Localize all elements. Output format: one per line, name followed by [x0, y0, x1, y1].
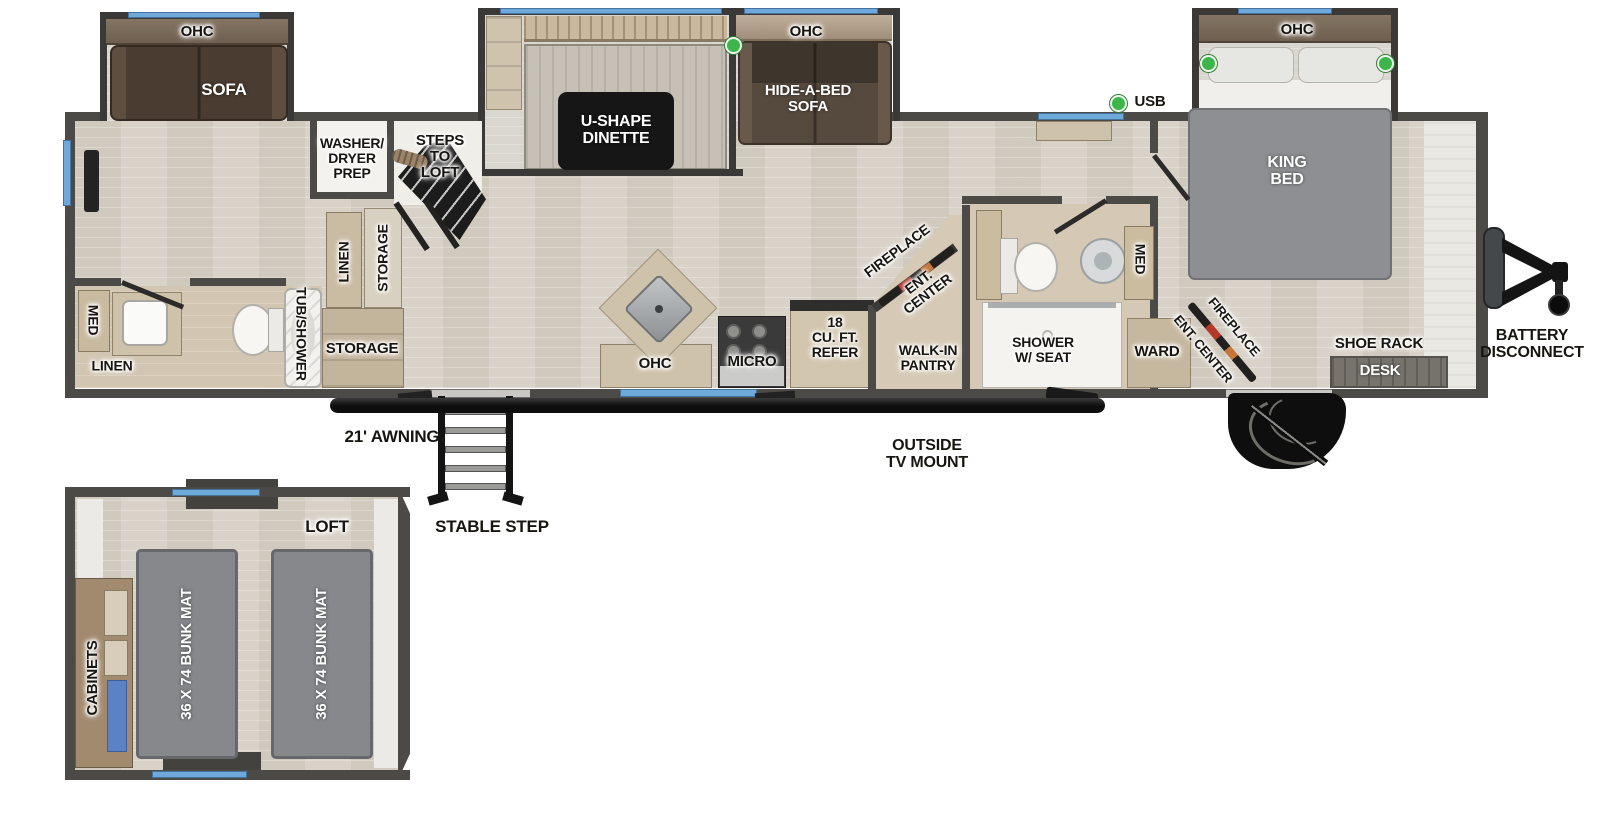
refrigerator-label: 18 CU. FT. REFER [812, 315, 858, 359]
wall [65, 487, 75, 780]
shower-w-seat-label: SHOWER W/ SEAT [1012, 335, 1074, 365]
loft-panel [77, 499, 103, 579]
wall [310, 192, 394, 199]
med-label: MED [1133, 244, 1148, 275]
bathroom-cabinet [976, 210, 1002, 300]
wall [478, 169, 743, 176]
trailer-hitch-icon [1482, 220, 1578, 324]
bunk-mat-label: 36 X 74 BUNK MAT [179, 588, 195, 720]
side-entry-door [430, 389, 530, 398]
usb-indicator [1200, 55, 1217, 72]
wall [1150, 121, 1158, 153]
linen-label: LINEN [91, 359, 132, 374]
u-shape-dinette-label: U-SHAPE DINETTE [581, 114, 652, 148]
dinette-window-valance [524, 16, 727, 42]
usb-indicator [1110, 95, 1127, 112]
burner-icon [726, 324, 741, 339]
window [128, 12, 260, 18]
rv-floorplan: OHC SOFA WASHER/ DRYER PREP STEPS TO LOF… [0, 0, 1600, 840]
pillow [1298, 47, 1384, 83]
tub-shower-label: TUB/SHOWER [294, 287, 309, 381]
hide-a-bed-sofa-label: HIDE-A-BED SOFA [765, 83, 851, 115]
cabinets-label: CABINETS [85, 640, 101, 715]
awning-label: 21' AWNING [345, 428, 440, 446]
toilet-tank [268, 308, 284, 352]
stable-step-foot [427, 491, 449, 505]
king-bed-label: KING BED [1267, 155, 1306, 189]
outside-tv-mount-label: OUTSIDE TV MOUNT [886, 438, 968, 472]
loft-panel [374, 499, 398, 768]
steps-to-loft-label: STEPS TO LOFT [416, 133, 464, 181]
wall [868, 305, 876, 389]
storage-label: STORAGE [326, 341, 399, 357]
window [744, 8, 878, 14]
loft-label: LOFT [305, 518, 349, 536]
sink-drain-icon [655, 305, 663, 313]
cabinet-shelf [104, 640, 128, 676]
window [500, 8, 722, 14]
ohc-label: OHC [1281, 22, 1314, 38]
ohc-label: OHC [790, 24, 823, 40]
pillow [1208, 47, 1294, 83]
micro-label: MICRO [728, 354, 777, 370]
usb-label: USB [1134, 94, 1165, 110]
burner-icon [752, 324, 767, 339]
sofa [110, 45, 288, 121]
sofa-label: SOFA [201, 81, 247, 99]
stable-step-label: STABLE STEP [435, 518, 549, 536]
wall [962, 196, 1062, 204]
king-bed [1188, 108, 1392, 280]
med-label: MED [86, 305, 101, 336]
cabinet [1036, 121, 1112, 141]
usb-indicator [1377, 55, 1394, 72]
ohc-label: OHC [181, 24, 214, 40]
washer-dryer-prep-label: WASHER/ DRYER PREP [320, 136, 384, 180]
stable-step-tread [445, 446, 506, 453]
front-cap [1424, 121, 1476, 388]
bathroom-sink [122, 300, 168, 346]
usb-indicator [725, 37, 742, 54]
window [63, 140, 71, 206]
toilet [1014, 242, 1058, 292]
awning-bar [330, 398, 1105, 413]
wall [1390, 112, 1488, 121]
wall [65, 278, 121, 286]
wall [729, 8, 736, 170]
cabinet-item [107, 680, 127, 752]
stable-step-tread [445, 465, 506, 472]
wall [310, 121, 317, 199]
wall [190, 278, 286, 286]
wall [1192, 8, 1199, 121]
wall [286, 112, 486, 121]
shower-door [988, 302, 1116, 308]
stable-step-foot [502, 491, 524, 505]
shoe-rack-label: SHOE RACK [1335, 336, 1423, 352]
stable-step-tread [445, 427, 506, 434]
stable-step-tread [445, 483, 506, 490]
walk-in-pantry-label: WALK-IN PANTRY [899, 343, 957, 373]
window [1038, 113, 1124, 120]
tv-icon [84, 150, 99, 212]
window [152, 771, 247, 778]
cabinet-shelf [104, 590, 128, 636]
wall [287, 12, 294, 121]
window [172, 489, 260, 496]
sink-bowl-icon [1094, 252, 1112, 270]
wall [962, 205, 970, 389]
bunk-mat-label: 36 X 74 BUNK MAT [314, 588, 330, 720]
window [620, 389, 757, 397]
battery-disconnect-label: BATTERY DISCONNECT [1480, 328, 1584, 362]
storage-label: STORAGE [376, 224, 391, 292]
wall [893, 8, 900, 121]
desk-label: DESK [1360, 363, 1401, 379]
refrigerator-top [790, 300, 874, 311]
window [1238, 8, 1332, 14]
ward-label: WARD [1134, 344, 1179, 360]
linen-label: LINEN [337, 241, 352, 282]
wall [398, 487, 410, 780]
ohc-label: OHC [639, 356, 672, 372]
cabinet [486, 16, 522, 110]
